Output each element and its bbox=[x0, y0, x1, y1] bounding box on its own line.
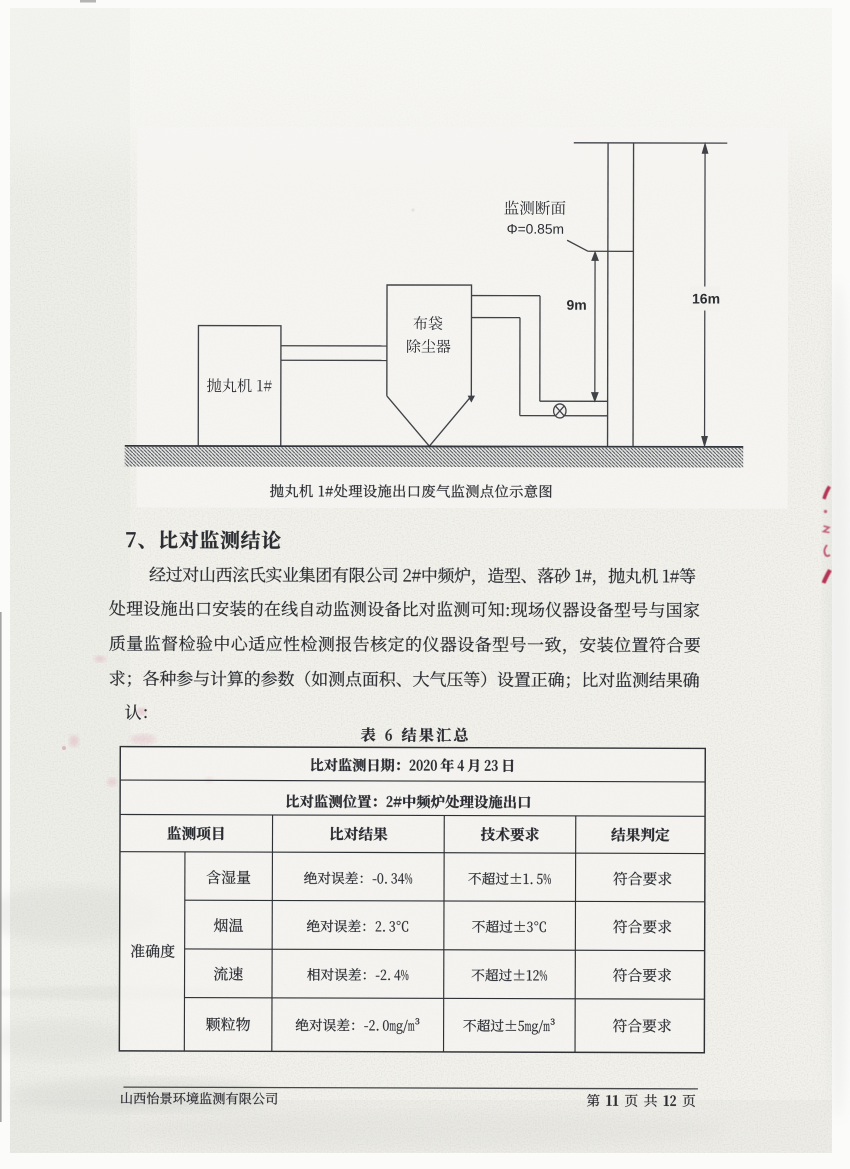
svg-text:16m: 16m bbox=[692, 290, 720, 306]
svg-text:9m: 9m bbox=[566, 297, 586, 313]
svg-text:Φ=0.85m: Φ=0.85m bbox=[507, 222, 564, 237]
